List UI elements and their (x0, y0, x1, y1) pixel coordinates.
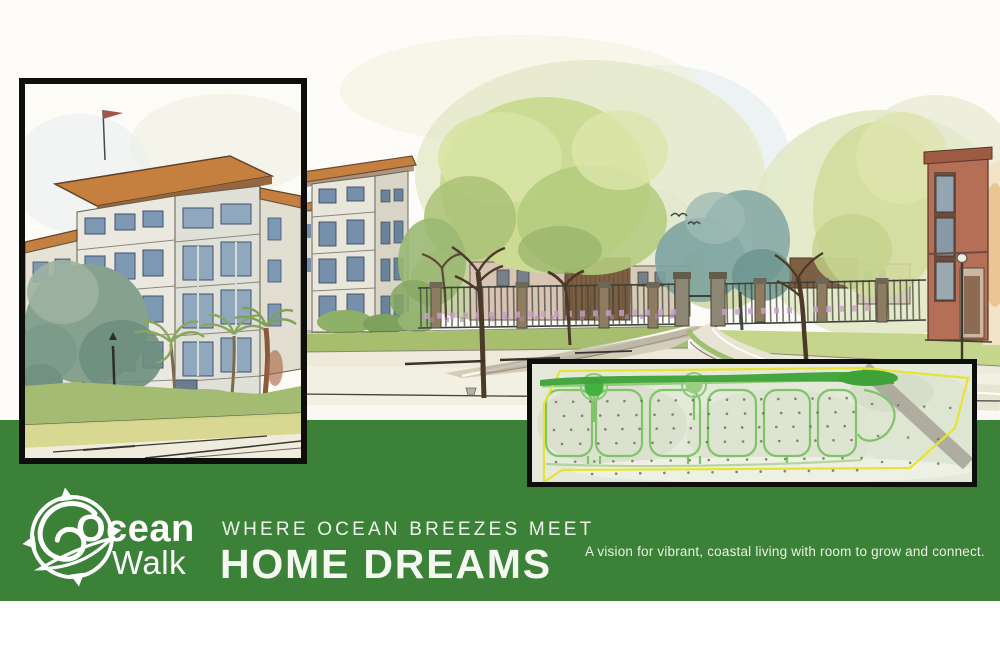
building-closeup-illustration (25, 84, 301, 458)
headline-title: HOME DREAMS (220, 541, 552, 588)
siteplan-illustration (532, 364, 972, 482)
flyer-canvas: Ocean Walk WHERE OCEAN BREEZES MEET HOME… (0, 0, 1000, 667)
headline-kicker: WHERE OCEAN BREEZES MEET (222, 519, 594, 541)
building-inset-frame (19, 78, 307, 464)
brand-name-line2: Walk (112, 544, 186, 582)
siteplan-inset-frame (527, 359, 977, 487)
greenbelt-blob (838, 370, 898, 386)
tagline-text: A vision for vibrant, coastal living wit… (585, 544, 985, 559)
